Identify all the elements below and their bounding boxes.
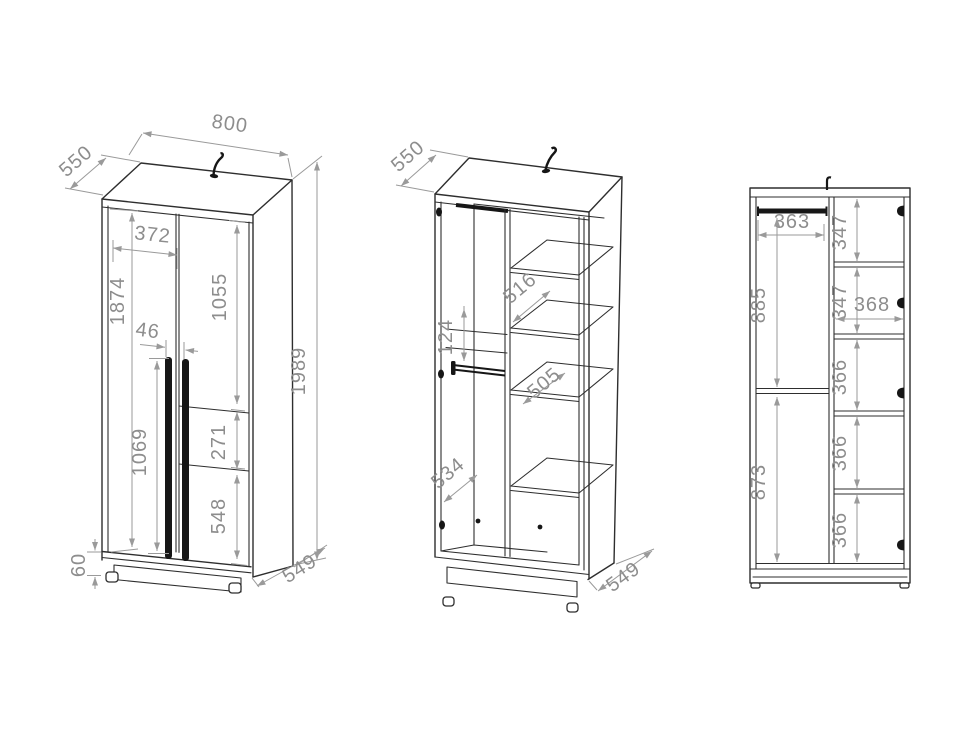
dim-top-width: 800 <box>210 111 249 138</box>
fitting-dot <box>476 519 481 524</box>
dim-back-gap: 124 <box>435 319 457 355</box>
hanging-rail <box>451 361 505 376</box>
view-open-interior: 550 516 124 505 534 549 <box>387 136 654 612</box>
dim-shelf-cell-3: 366 <box>829 359 851 395</box>
dim-handle-length: 1069 <box>129 428 151 477</box>
dim-shelf-width: 368 <box>854 294 890 316</box>
fitting-dot <box>538 525 543 530</box>
hinge-dot <box>439 521 445 530</box>
foot-left <box>106 572 118 582</box>
hinge-dot <box>897 388 904 399</box>
dim-top-depth: 550 <box>387 136 429 176</box>
dim-total-height: 1989 <box>288 347 310 396</box>
dimensions-front-section: 363 885 873 347 347 368 366 366 366 <box>748 199 903 562</box>
dim-top-depth: 550 <box>55 141 97 181</box>
dimensions-open-interior: 550 516 124 505 534 549 <box>387 136 654 596</box>
mounting-hook-icon <box>542 148 556 174</box>
hinge-dot <box>897 540 904 551</box>
foot-right <box>567 603 578 612</box>
door-handle-left <box>165 357 172 559</box>
dim-left-door-width: 372 <box>133 222 171 248</box>
hinge-dot <box>436 208 442 217</box>
dim-plinth-height: 60 <box>68 553 90 577</box>
dim-door-height: 1874 <box>107 277 129 326</box>
foot-left <box>443 597 454 606</box>
dim-bottom-depth: 549 <box>279 550 322 588</box>
dim-right-door-middle: 271 <box>208 424 230 460</box>
dim-handle-gap: 46 <box>134 319 161 344</box>
view-front-closed: 800 550 372 1874 1055 46 1069 271 <box>55 111 327 593</box>
dim-right-door-lower: 548 <box>208 498 230 534</box>
dim-hanging-lower-height: 873 <box>748 464 770 500</box>
foot-left <box>751 583 760 588</box>
dim-shelf-cell-2: 347 <box>829 284 851 320</box>
hinge-dot <box>897 298 904 309</box>
wardrobe-dimension-drawing: 800 550 372 1874 1055 46 1069 271 <box>0 0 972 729</box>
dim-hanging-upper-height: 885 <box>748 287 770 323</box>
dim-shelf-cell-5: 366 <box>829 512 851 548</box>
dim-hanging-width: 363 <box>774 211 810 233</box>
cabinet-outline <box>102 163 293 593</box>
foot-right <box>229 583 241 593</box>
door-handle-right <box>182 359 189 561</box>
hinge-dot <box>438 370 444 379</box>
dim-hanging-section-depth: 534 <box>427 453 469 493</box>
door-handles <box>165 357 189 561</box>
dimensions-front-closed: 800 550 372 1874 1055 46 1069 271 <box>55 111 327 589</box>
dim-bottom-depth: 549 <box>602 558 644 597</box>
mounting-hook-icon <box>210 153 223 178</box>
dim-shelf-cell-4: 366 <box>829 435 851 471</box>
dim-right-door-upper: 1055 <box>209 273 231 322</box>
technical-drawing-page: 800 550 372 1874 1055 46 1069 271 <box>0 0 972 729</box>
hinge-markers <box>897 206 904 551</box>
dim-lower-shelf-depth: 505 <box>523 363 565 403</box>
view-front-section: 363 885 873 347 347 368 366 366 366 <box>748 177 910 588</box>
dim-shelf-cell-1: 347 <box>829 214 851 250</box>
foot-right <box>900 583 909 588</box>
hinge-dot <box>897 206 904 217</box>
